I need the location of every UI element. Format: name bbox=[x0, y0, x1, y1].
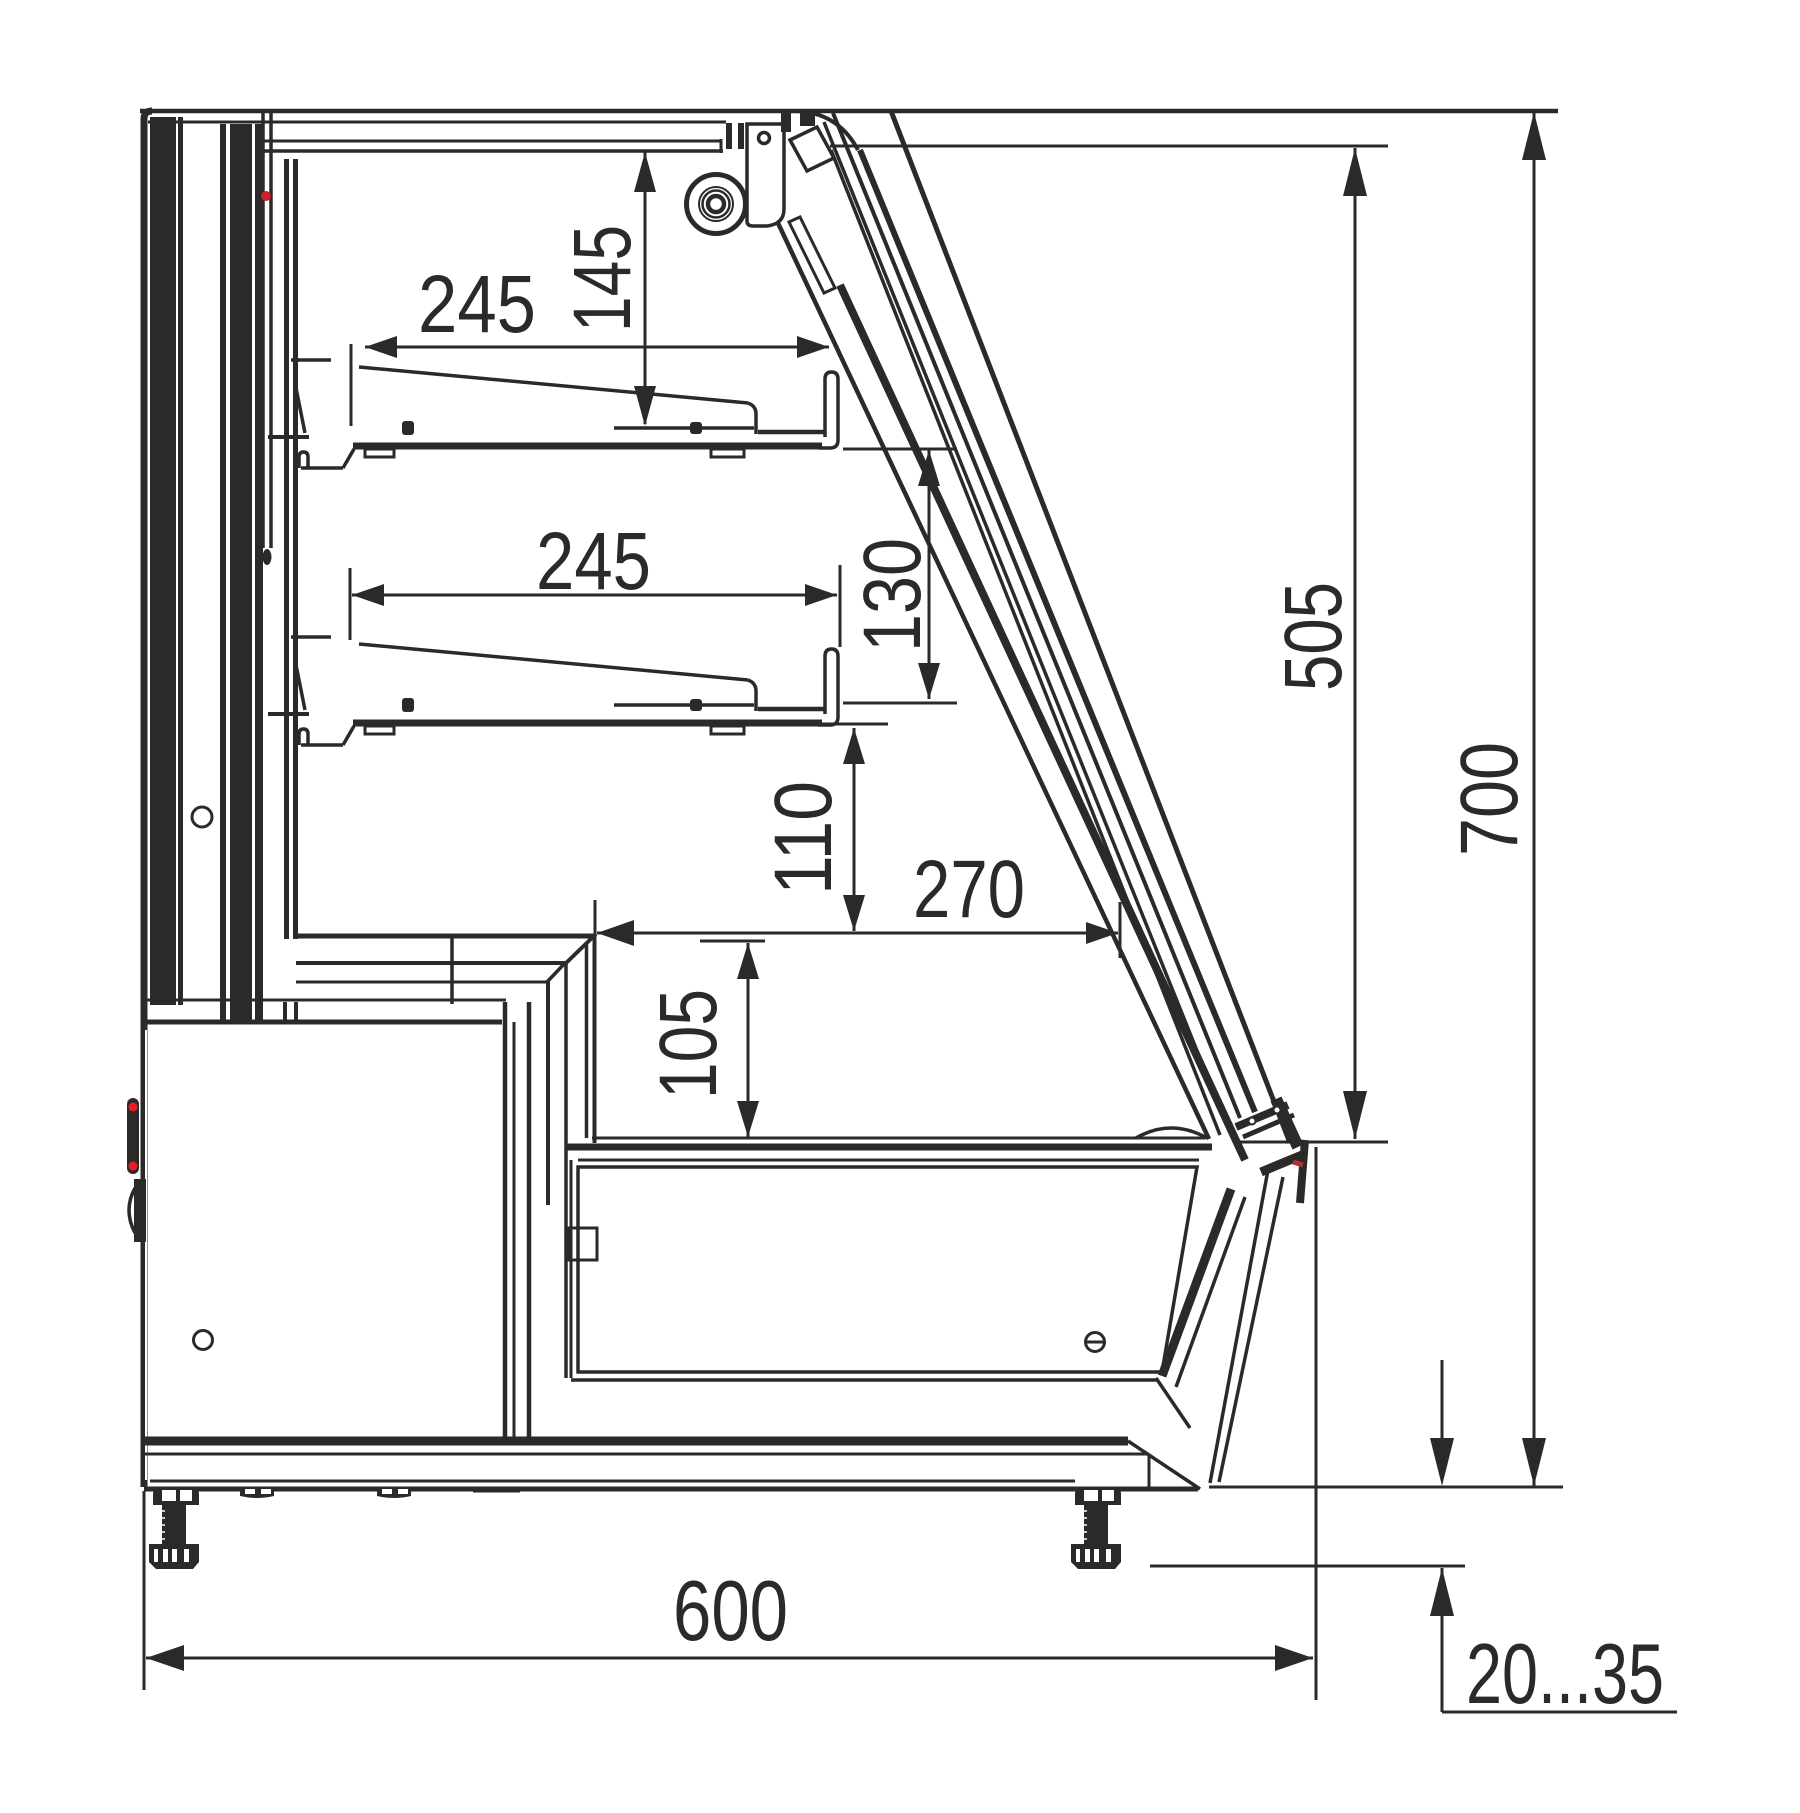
svg-text:600: 600 bbox=[673, 1564, 788, 1659]
svg-text:270: 270 bbox=[913, 844, 1025, 935]
svg-text:700: 700 bbox=[1444, 742, 1535, 856]
svg-text:145: 145 bbox=[557, 225, 648, 332]
svg-text:20...35: 20...35 bbox=[1466, 1627, 1664, 1722]
svg-text:245: 245 bbox=[418, 259, 536, 350]
svg-text:245: 245 bbox=[536, 516, 651, 607]
svg-text:110: 110 bbox=[758, 781, 849, 895]
svg-text:130: 130 bbox=[847, 538, 938, 652]
svg-text:505: 505 bbox=[1268, 582, 1359, 691]
svg-text:105: 105 bbox=[643, 989, 734, 1099]
